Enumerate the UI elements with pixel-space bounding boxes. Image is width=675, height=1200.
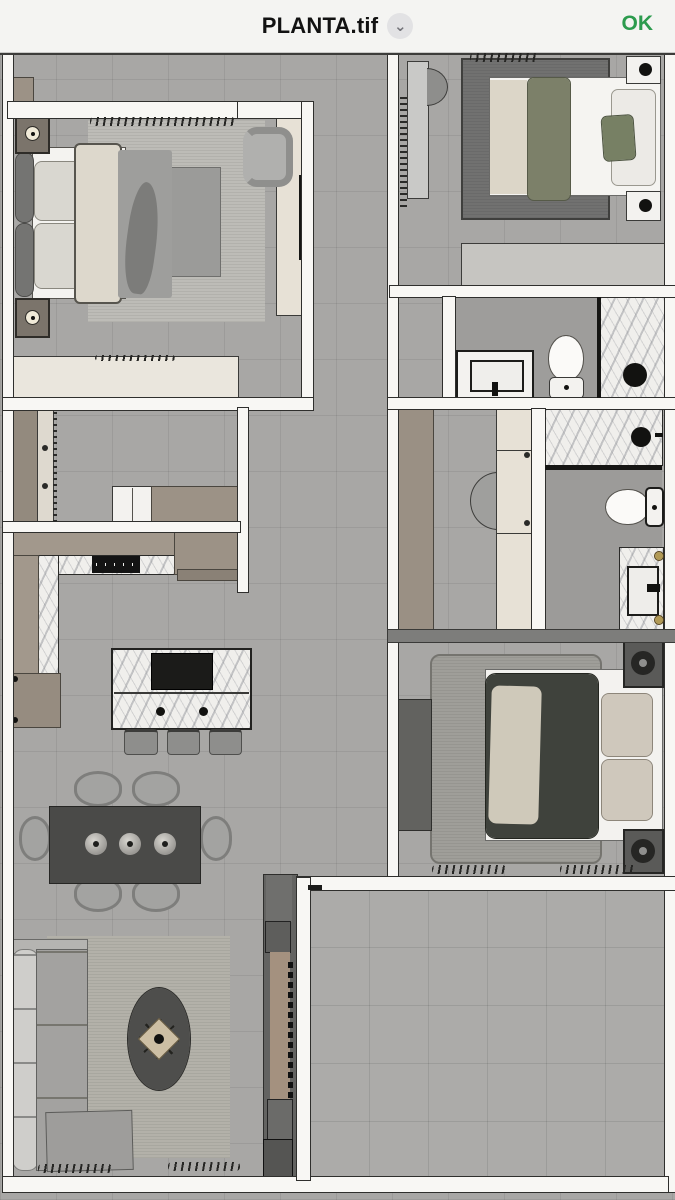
- wall-outer-right: [665, 52, 675, 1192]
- bar-stool: [124, 729, 158, 755]
- living-curtain: [168, 1162, 240, 1171]
- entry-closet: [10, 408, 38, 522]
- tv-unit-top: [266, 875, 292, 922]
- cabinet-knob: [524, 452, 530, 458]
- tv-unit-base: [264, 1140, 292, 1180]
- bedroom3-curtain: [432, 865, 506, 874]
- hall-shelf: [13, 78, 33, 102]
- ok-button[interactable]: OK: [622, 12, 654, 36]
- wall-bedroom3-top: [388, 630, 675, 642]
- wall-bedroom3-bottom: [297, 877, 675, 890]
- bedroom1-dresser: [12, 357, 238, 397]
- bathroom1-toilet-bowl: [549, 336, 583, 380]
- wall-bedroom1-top: [8, 102, 313, 118]
- tv-unit-cabinet: [268, 1100, 292, 1140]
- coffee-decor-center: [154, 1034, 164, 1044]
- wall-kitchen-top: [3, 398, 313, 410]
- wall-bath1-partition: [443, 297, 455, 398]
- bedroom3-pillow: [602, 694, 652, 756]
- tv-backpanel: [270, 952, 290, 1100]
- island-divider: [114, 692, 249, 694]
- bathroom2-shower-head: [631, 427, 651, 447]
- kitchen-counter-side: [38, 556, 58, 674]
- entry-slide-track: [53, 410, 57, 522]
- bedroom2-curtain: [470, 53, 540, 62]
- closet-knob: [42, 445, 48, 451]
- bar-stool: [167, 729, 200, 755]
- bedroom2-window-hatch: [400, 95, 407, 207]
- coffee-table: [128, 988, 190, 1090]
- sofa-chaise: [46, 1111, 132, 1171]
- hall-door-arc: [470, 472, 498, 530]
- terrace-door-mark: [308, 885, 322, 890]
- table-plate: [154, 833, 176, 855]
- terrace-floor: [310, 890, 665, 1180]
- bedroom1-duvet: [76, 145, 120, 302]
- entry-closet-door: [38, 408, 53, 522]
- bathroom2-faucet: [647, 584, 660, 592]
- bedroom2-door-arc: [427, 68, 448, 106]
- bar-stool: [209, 729, 242, 755]
- file-title: PLANTA.tif: [262, 13, 378, 39]
- bedroom3-lamp: [631, 839, 655, 863]
- dining-chair: [74, 771, 122, 807]
- bathroom2-toilet-button: [652, 505, 657, 510]
- bathroom1-faucet: [492, 382, 498, 396]
- table-plate: [85, 833, 107, 855]
- kitchen-lower-cabinets: [10, 556, 38, 674]
- bedroom1-lamp-dot: [31, 132, 35, 136]
- bathroom1-shower-glass: [597, 297, 601, 398]
- tv-screen-edge: [288, 960, 293, 1108]
- sofa-back-cushions: [13, 950, 38, 1170]
- wall-bath2-left: [532, 409, 545, 630]
- bedroom1-curtain: [90, 117, 235, 126]
- kitchen-counter-right: [175, 532, 238, 574]
- appliance-divider: [132, 488, 133, 521]
- chevron-down-icon[interactable]: ⌄: [387, 13, 413, 39]
- bedroom3-desk: [393, 700, 431, 830]
- kitchen-cooktop: [92, 556, 140, 573]
- bedroom3-lamp: [631, 651, 655, 675]
- bathroom2-toilet-bowl: [606, 490, 648, 524]
- bathroom2-knob: [655, 616, 663, 624]
- wall-outer-bottom: [3, 1177, 668, 1192]
- bathroom2-shower-glass: [545, 465, 662, 470]
- bedroom2-blanket: [528, 78, 570, 200]
- table-plate: [119, 833, 141, 855]
- bathroom2-knob: [655, 552, 663, 560]
- tv-unit: [264, 875, 297, 1180]
- entry-counter: [152, 487, 238, 522]
- wall-living-terrace: [297, 878, 310, 1180]
- living-curtain: [38, 1164, 112, 1173]
- bedroom1-dresser-decor: [95, 355, 175, 361]
- bedroom1-headboard-cushion: [16, 153, 33, 222]
- bedroom2-lamp: [639, 199, 652, 212]
- wall-outer-left: [3, 52, 13, 1192]
- cabinet-knob: [524, 520, 530, 526]
- wall-entry-mid: [3, 522, 240, 532]
- bedroom1-lamp-dot: [31, 316, 35, 320]
- wall-central-divider: [388, 52, 398, 890]
- tv-unit-shelf: [266, 922, 290, 952]
- dining-chair: [19, 816, 51, 861]
- bedroom2-duvet: [490, 80, 527, 194]
- wall-bedroom1-right: [302, 102, 313, 408]
- closet-knob: [42, 483, 48, 489]
- bedroom1-bench: [172, 168, 220, 276]
- bedroom2-closet: [408, 62, 428, 198]
- wall-bath1-bottom: [388, 398, 675, 409]
- bathroom1-shower-head: [623, 363, 647, 387]
- island-sink-dot: [199, 707, 208, 716]
- wall-kitchen-inner: [238, 408, 248, 592]
- dining-chair: [132, 771, 180, 807]
- bedroom1-armchair: [243, 127, 293, 187]
- bedroom2-lamp: [639, 63, 652, 76]
- island-cooktop: [152, 654, 212, 689]
- wall-bed2-bath1: [390, 286, 675, 297]
- bedroom3-throw: [488, 685, 542, 824]
- floorplan-image[interactable]: [0, 52, 675, 1200]
- bedroom2-dresser: [462, 244, 665, 285]
- bedroom1-headboard-cushion: [16, 224, 33, 296]
- sofa: [13, 940, 132, 1172]
- kitchen-counter-right-front: [178, 570, 238, 580]
- bathroom2-shower-handle: [655, 433, 663, 437]
- island-sink-dot: [156, 707, 165, 716]
- bedroom3-curtain: [560, 865, 637, 874]
- bathroom1-toilet-button: [564, 385, 569, 390]
- bedroom3-pillow: [602, 760, 652, 820]
- dining-chair: [200, 816, 232, 861]
- bedroom2-olive-pillow: [602, 115, 636, 161]
- top-bar: PLANTA.tif ⌄ OK: [0, 0, 675, 53]
- file-viewer-app: PLANTA.tif ⌄ OK: [0, 0, 675, 1200]
